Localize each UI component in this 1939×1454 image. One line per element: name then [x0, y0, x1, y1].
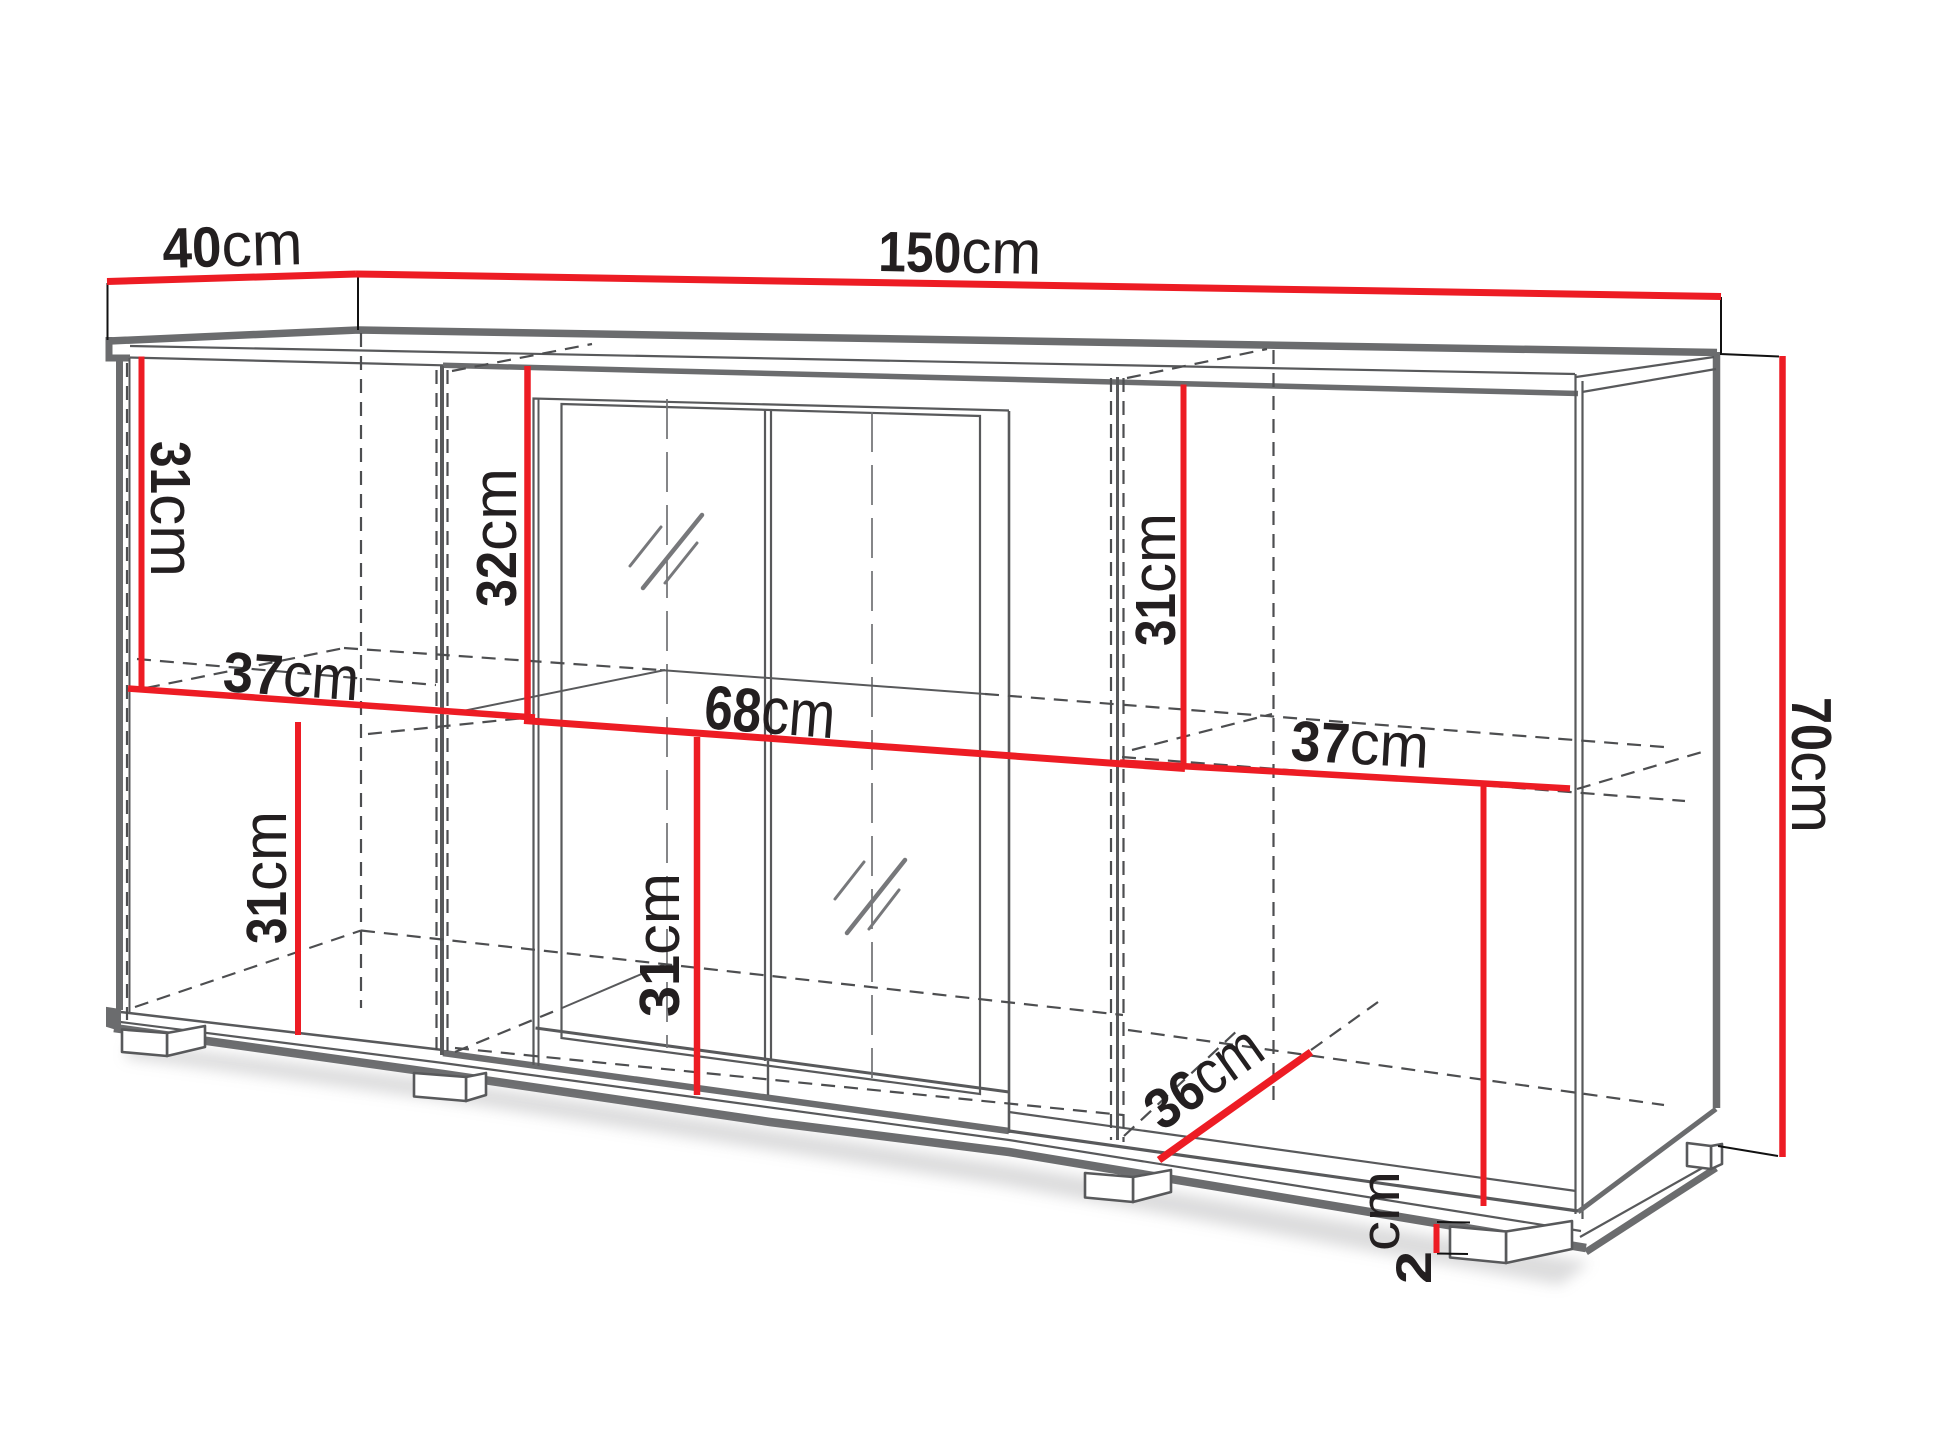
svg-text:31cm: 31cm — [1120, 513, 1189, 646]
svg-text:32cm: 32cm — [461, 468, 530, 607]
svg-text:31cm: 31cm — [137, 441, 206, 577]
svg-text:68cm: 68cm — [702, 668, 838, 752]
svg-text:37cm: 37cm — [1289, 705, 1431, 782]
svg-text:31cm: 31cm — [624, 873, 693, 1017]
svg-text:37cm: 37cm — [221, 636, 361, 714]
svg-text:150cm: 150cm — [878, 216, 1042, 288]
svg-text:2: 2 — [1386, 1251, 1442, 1284]
svg-text:31cm: 31cm — [231, 811, 300, 944]
svg-text:70cm: 70cm — [1778, 697, 1847, 833]
svg-text:40cm: 40cm — [161, 209, 303, 282]
svg-text:cm: cm — [1349, 1171, 1411, 1251]
